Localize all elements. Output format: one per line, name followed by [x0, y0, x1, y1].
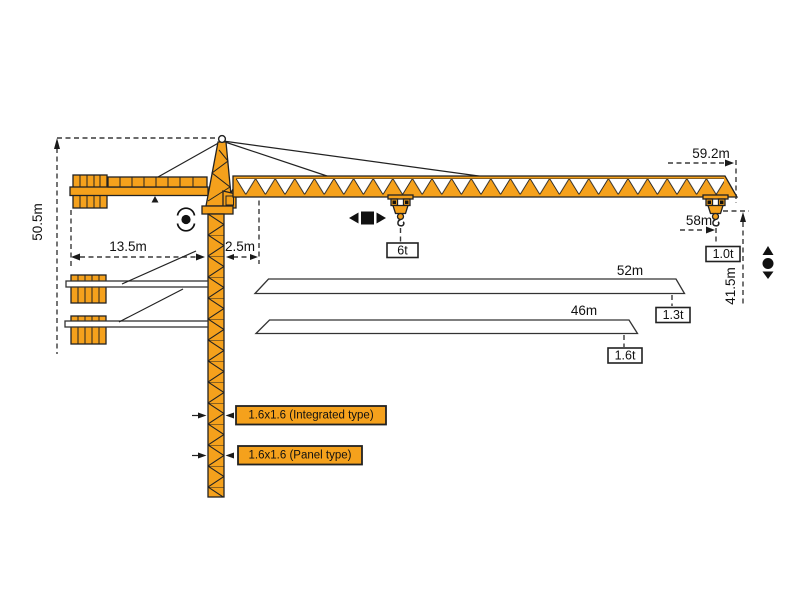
counter-ballast-bar: [66, 281, 208, 287]
leader-line: [122, 251, 196, 284]
mast-section-label: 1.6x1.6 (Panel type): [249, 450, 352, 462]
tip-load-label: 1.0t: [713, 247, 734, 261]
jib-option-bar: [255, 279, 685, 294]
arrow-right-icon: [198, 453, 207, 459]
arrow-left-icon: [226, 453, 235, 459]
tip-load-label: 1.6t: [615, 349, 636, 363]
arrow-left-icon: [226, 254, 234, 260]
tower-crane-diagram: 50.5m 13.5m 2.5m 59.2m 58m 41.5m: [0, 0, 800, 600]
counter-jib-beam: [70, 187, 208, 196]
working-radius-dimension: 58m: [680, 213, 715, 234]
arrow-right-icon: [196, 254, 205, 261]
trolley-travel-icon: [349, 212, 386, 225]
root-offset-label: 2.5m: [225, 239, 255, 254]
arrow-right-icon: [198, 413, 207, 419]
jib: [233, 176, 737, 197]
arrow-up-icon: [740, 212, 746, 222]
jib-option-length-label: 52m: [617, 263, 643, 278]
hook-block: [713, 214, 719, 220]
counter-jib: [70, 175, 208, 208]
height-dimension-label: 50.5m: [30, 203, 45, 241]
jib-option-bar: [256, 320, 638, 334]
jib-lattice: [236, 179, 724, 195]
max-load-label: 6t: [397, 244, 408, 258]
tip-load-label: 1.3t: [663, 308, 684, 322]
working-radius-label: 58m: [686, 213, 712, 228]
tie-rods: [158, 141, 486, 178]
jib-option-length-label: 46m: [571, 303, 597, 318]
slewing-rotation-icon: [178, 208, 195, 231]
mast: [208, 214, 224, 497]
jib-tie-far: [223, 141, 486, 177]
jib-option-52m: 52m 1.3t: [255, 263, 690, 323]
tower-head: [202, 136, 239, 214]
counter-ballast-bar: [65, 321, 208, 327]
trolley-mid: 6t: [387, 195, 418, 258]
arrow-right-icon: [250, 254, 258, 260]
arrow-left-icon: [71, 254, 80, 261]
jib-tie-near: [222, 141, 333, 178]
hook-block: [398, 214, 404, 220]
hook-icon: [398, 220, 404, 226]
mast-lattice: [208, 214, 224, 497]
hook-icon: [713, 220, 719, 226]
counterweight-option-1: [66, 251, 208, 303]
mast-section-label: 1.6x1.6 (Integrated type): [248, 410, 373, 422]
lifting-height-label: 41.5m: [723, 267, 738, 305]
apex-pin: [219, 136, 226, 143]
slewing-platform: [202, 206, 233, 214]
arrow-left-icon: [226, 413, 235, 419]
leader-line: [119, 289, 183, 322]
arrow-up-icon: [54, 138, 60, 149]
jib-option-46m: 46m 1.6t: [256, 303, 642, 363]
jib-length-label: 59.2m: [692, 146, 730, 161]
counter-jib-platform: [108, 177, 207, 187]
balance-marker-icon: [152, 196, 159, 203]
counter-radius-label: 13.5m: [109, 239, 147, 254]
hoisting-icon: [763, 246, 774, 279]
